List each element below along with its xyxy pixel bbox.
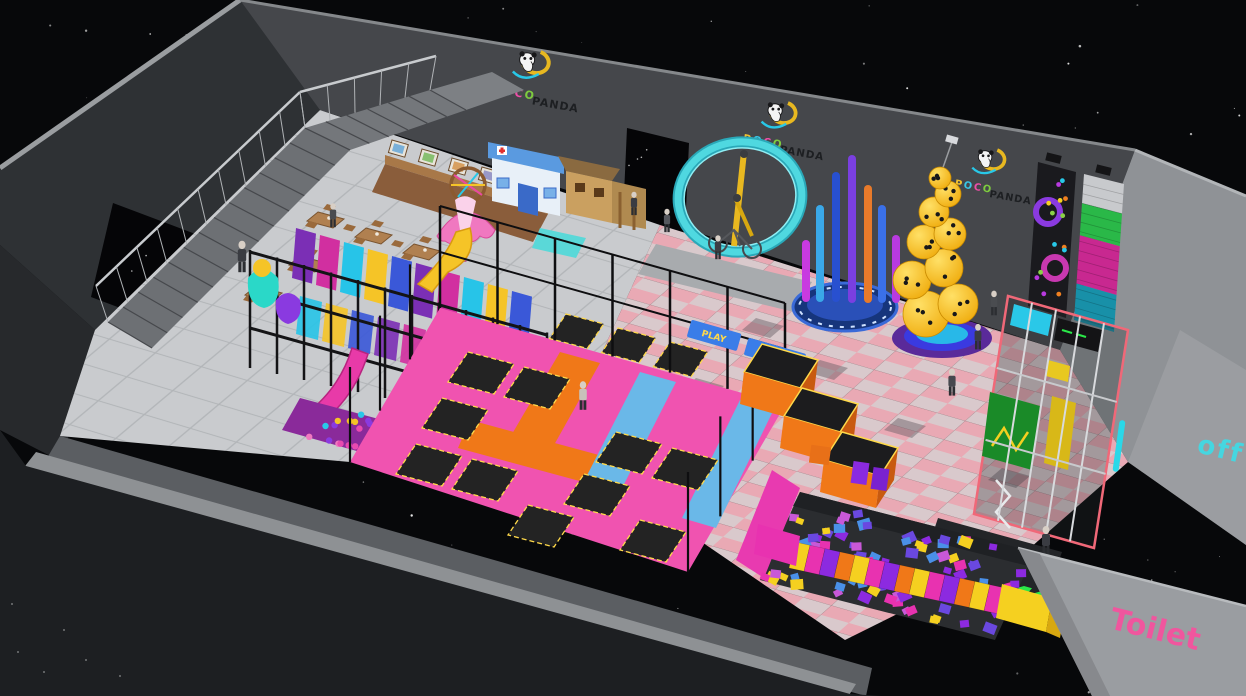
- playground-render: POCO PANDA POCO PANDA: [0, 0, 1246, 696]
- soft-figure-yellow: [253, 259, 271, 277]
- playhouse-door: [518, 183, 538, 216]
- scene-canvas: POCO PANDA POCO PANDA: [0, 0, 1246, 696]
